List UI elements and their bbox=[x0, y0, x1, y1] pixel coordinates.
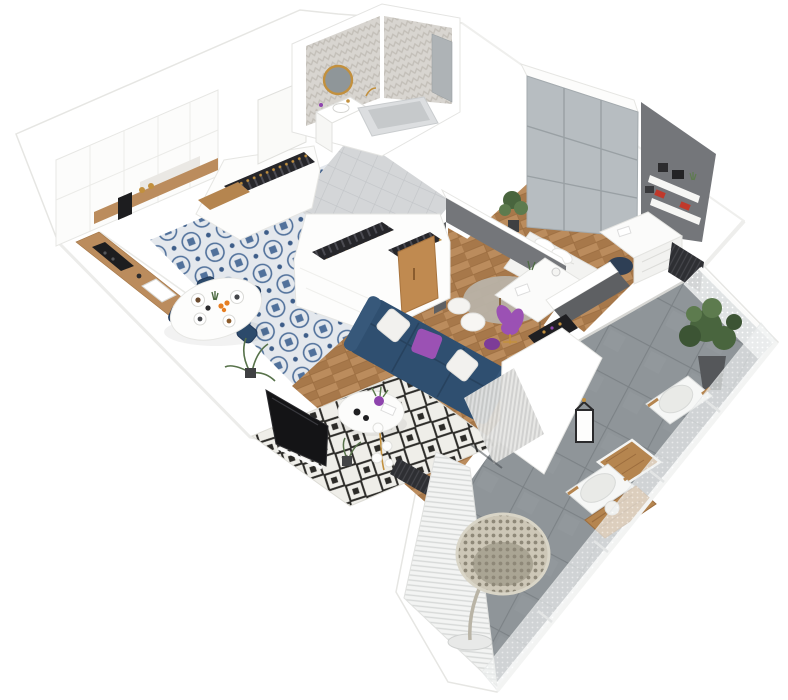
faucet-icon bbox=[137, 274, 142, 279]
plant-pot bbox=[342, 456, 352, 466]
jar-icon bbox=[139, 187, 145, 193]
floorplan-canvas bbox=[0, 0, 788, 700]
round-mirror bbox=[324, 66, 352, 94]
storage-box-icon bbox=[645, 186, 654, 193]
soap-bottle-icon bbox=[319, 103, 323, 107]
lantern-ring bbox=[582, 398, 586, 402]
desk-lamp-icon bbox=[552, 268, 560, 276]
picture-frame-icon bbox=[672, 170, 684, 179]
jar-icon bbox=[148, 183, 154, 189]
candle-icon bbox=[354, 409, 361, 416]
candle-icon bbox=[205, 305, 210, 310]
fruit-icon bbox=[218, 303, 223, 308]
sink-basin bbox=[333, 104, 349, 113]
fruit-icon bbox=[224, 300, 229, 305]
shower-corner bbox=[432, 34, 452, 102]
candle-icon bbox=[363, 415, 369, 421]
egg-chair-seat bbox=[473, 542, 533, 586]
purple-vase-icon bbox=[374, 396, 384, 406]
fruit-icon bbox=[222, 308, 226, 312]
picture-frame-icon bbox=[658, 163, 668, 172]
floorplan-render bbox=[0, 0, 788, 700]
gold-faucet-icon bbox=[346, 99, 350, 103]
purple-throw bbox=[484, 338, 500, 350]
